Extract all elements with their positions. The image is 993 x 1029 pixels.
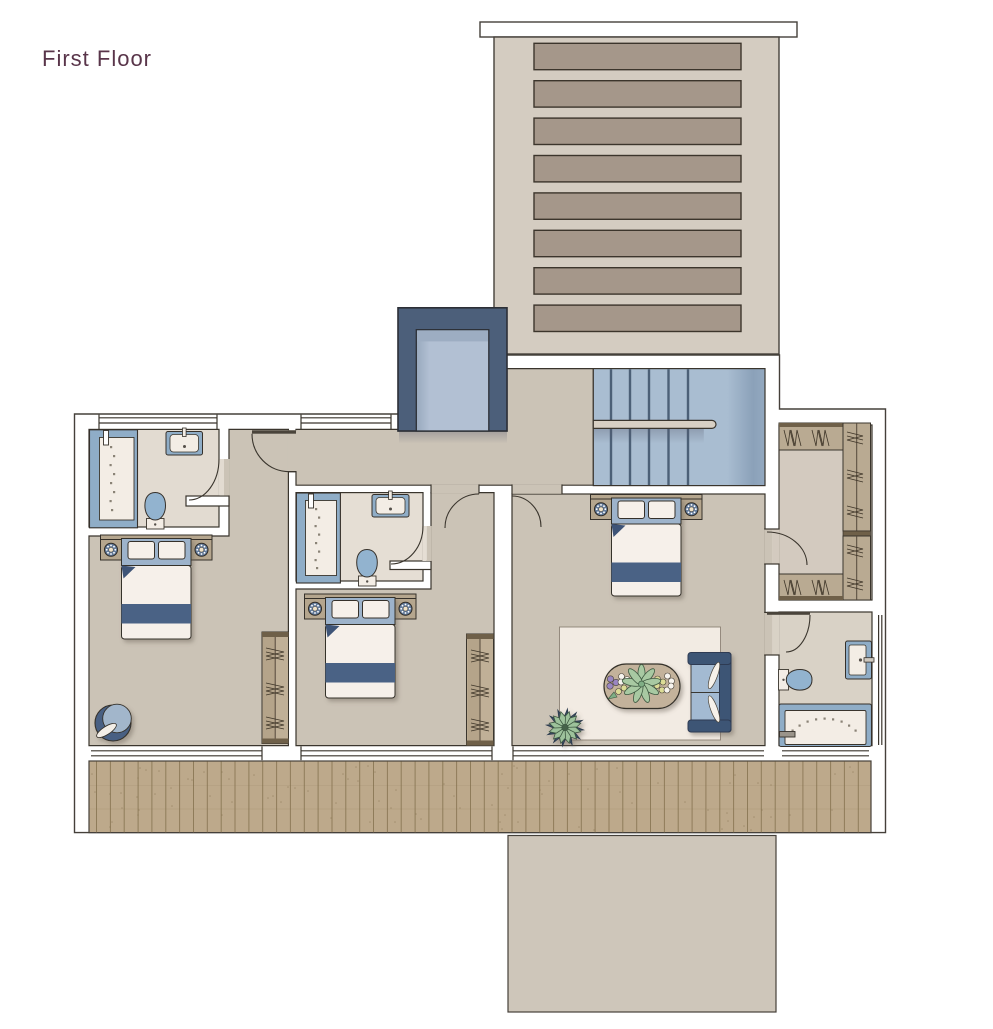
svg-text:First Floor: First Floor: [42, 46, 152, 71]
